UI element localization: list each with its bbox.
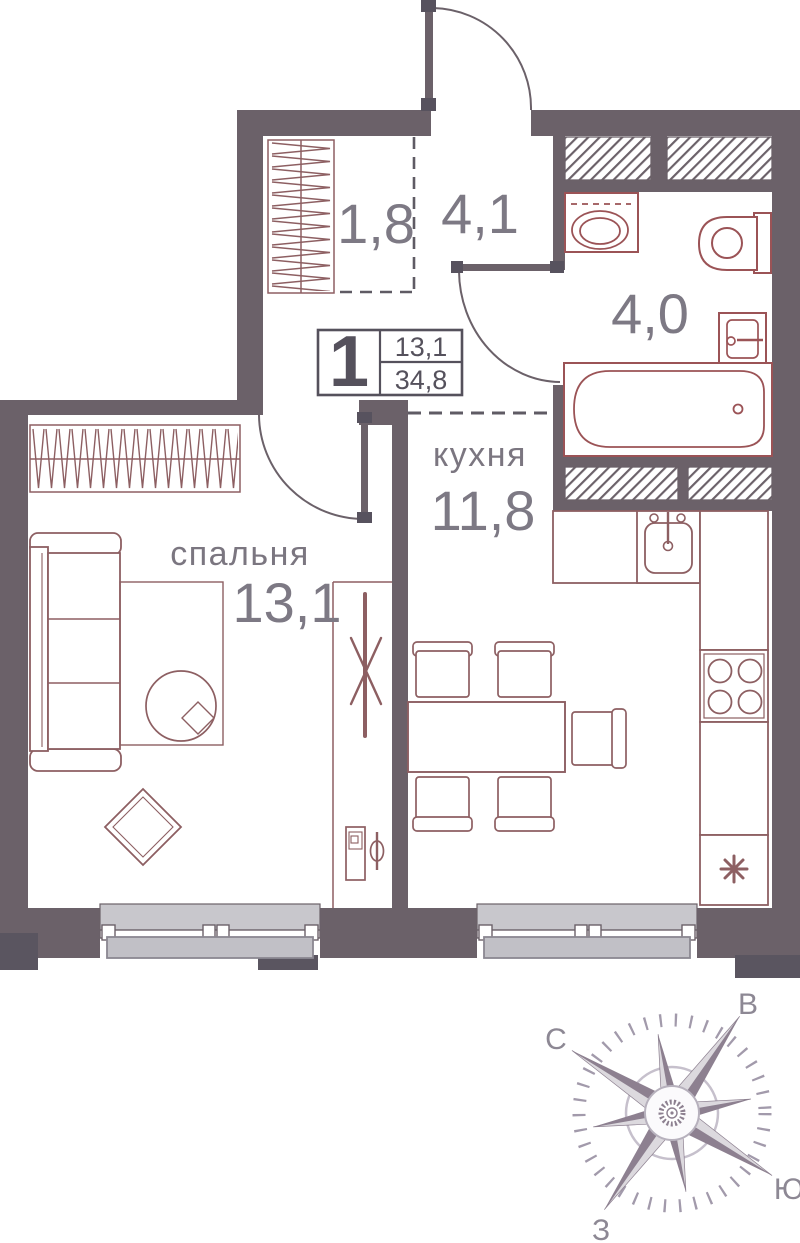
bedroom-window bbox=[100, 904, 320, 958]
bathroom-area: 4,0 bbox=[611, 282, 689, 345]
kitchen-area: 11,8 bbox=[431, 479, 536, 542]
unit-badge: 1 13,1 34,8 bbox=[318, 322, 462, 402]
wall bbox=[0, 400, 263, 415]
closet-wardrobe bbox=[268, 140, 334, 293]
bathtub-icon bbox=[564, 363, 772, 456]
kitchen-furniture bbox=[408, 511, 768, 905]
fridge-asterisk-icon bbox=[721, 856, 747, 882]
compass-center-dot bbox=[670, 1111, 673, 1114]
wall bbox=[320, 908, 477, 958]
iron-icon bbox=[346, 827, 384, 880]
door-cap bbox=[421, 98, 436, 111]
bedroom-furniture bbox=[30, 425, 392, 908]
bedroom-label: спальня bbox=[170, 535, 310, 573]
vent-shaft-icon bbox=[667, 137, 772, 180]
wall-step bbox=[0, 933, 38, 970]
dining-table bbox=[408, 702, 565, 772]
wall bbox=[237, 110, 263, 415]
door-cap bbox=[451, 261, 463, 273]
compass-south-label: Ю bbox=[774, 1173, 800, 1206]
door-cap bbox=[357, 412, 372, 423]
chair bbox=[572, 709, 626, 768]
wall-step bbox=[735, 955, 800, 978]
entrance-door bbox=[421, 0, 531, 111]
wall bbox=[697, 908, 772, 958]
door-leaf bbox=[361, 418, 368, 519]
wall bbox=[531, 110, 800, 136]
door-arc bbox=[459, 271, 560, 382]
wall bbox=[553, 136, 565, 270]
wall bbox=[237, 110, 431, 136]
door-cap bbox=[357, 512, 372, 523]
round-table bbox=[146, 671, 216, 741]
bedroom-wardrobe bbox=[30, 425, 240, 492]
door-leaf bbox=[457, 264, 562, 271]
vent-shaft-icon bbox=[688, 467, 772, 500]
closet-area: 1,8 bbox=[337, 192, 415, 255]
bedroom-area: 13,1 bbox=[233, 571, 342, 634]
door-leaf bbox=[425, 6, 433, 108]
vent-shaft-icon bbox=[565, 137, 651, 180]
fridge-spot bbox=[700, 835, 768, 905]
compass-east-label: В bbox=[738, 988, 758, 1021]
toilet-icon bbox=[699, 213, 771, 273]
bathroom-sink-icon bbox=[719, 313, 766, 365]
kitchen-label: кухня bbox=[433, 436, 527, 474]
compass-north-label: С bbox=[545, 1023, 567, 1056]
counter bbox=[700, 722, 768, 835]
washing-machine-icon bbox=[565, 193, 638, 252]
sofa bbox=[30, 533, 121, 771]
ironing-board-icon bbox=[351, 594, 381, 736]
counter bbox=[700, 511, 768, 650]
chair bbox=[495, 777, 554, 831]
chair bbox=[495, 642, 554, 697]
pouffe bbox=[105, 789, 181, 865]
vent-shaft-icon bbox=[565, 467, 678, 500]
bathroom-door bbox=[451, 261, 564, 382]
door-cap bbox=[550, 261, 564, 273]
stove-icon bbox=[700, 650, 768, 722]
floor-plan: 1 13,1 34,8 1,8 4,1 4,0 кухня 11,8 спаль… bbox=[0, 0, 800, 1243]
kitchen-window bbox=[477, 904, 697, 958]
door-arc bbox=[433, 8, 531, 110]
compass-west-label: З bbox=[592, 1214, 610, 1243]
bedroom-door bbox=[259, 412, 372, 523]
wall bbox=[678, 461, 688, 506]
chair bbox=[413, 642, 472, 697]
chair bbox=[413, 777, 472, 831]
door-cap bbox=[421, 0, 436, 12]
door-arc bbox=[259, 415, 364, 519]
kitchen-sink bbox=[637, 511, 700, 583]
badge-rooms-count: 1 bbox=[329, 322, 369, 402]
wall bbox=[553, 500, 772, 511]
wall bbox=[651, 136, 667, 186]
wall-partition bbox=[392, 415, 408, 908]
badge-living-area: 13,1 bbox=[395, 332, 448, 362]
wall bbox=[772, 136, 800, 958]
floor-plan-page: 1 13,1 34,8 1,8 4,1 4,0 кухня 11,8 спаль… bbox=[0, 0, 800, 1243]
wall bbox=[0, 400, 28, 958]
badge-total-area: 34,8 bbox=[395, 365, 448, 395]
hallway-area: 4,1 bbox=[441, 182, 519, 245]
compass-rose: В С Ю З bbox=[545, 988, 800, 1243]
